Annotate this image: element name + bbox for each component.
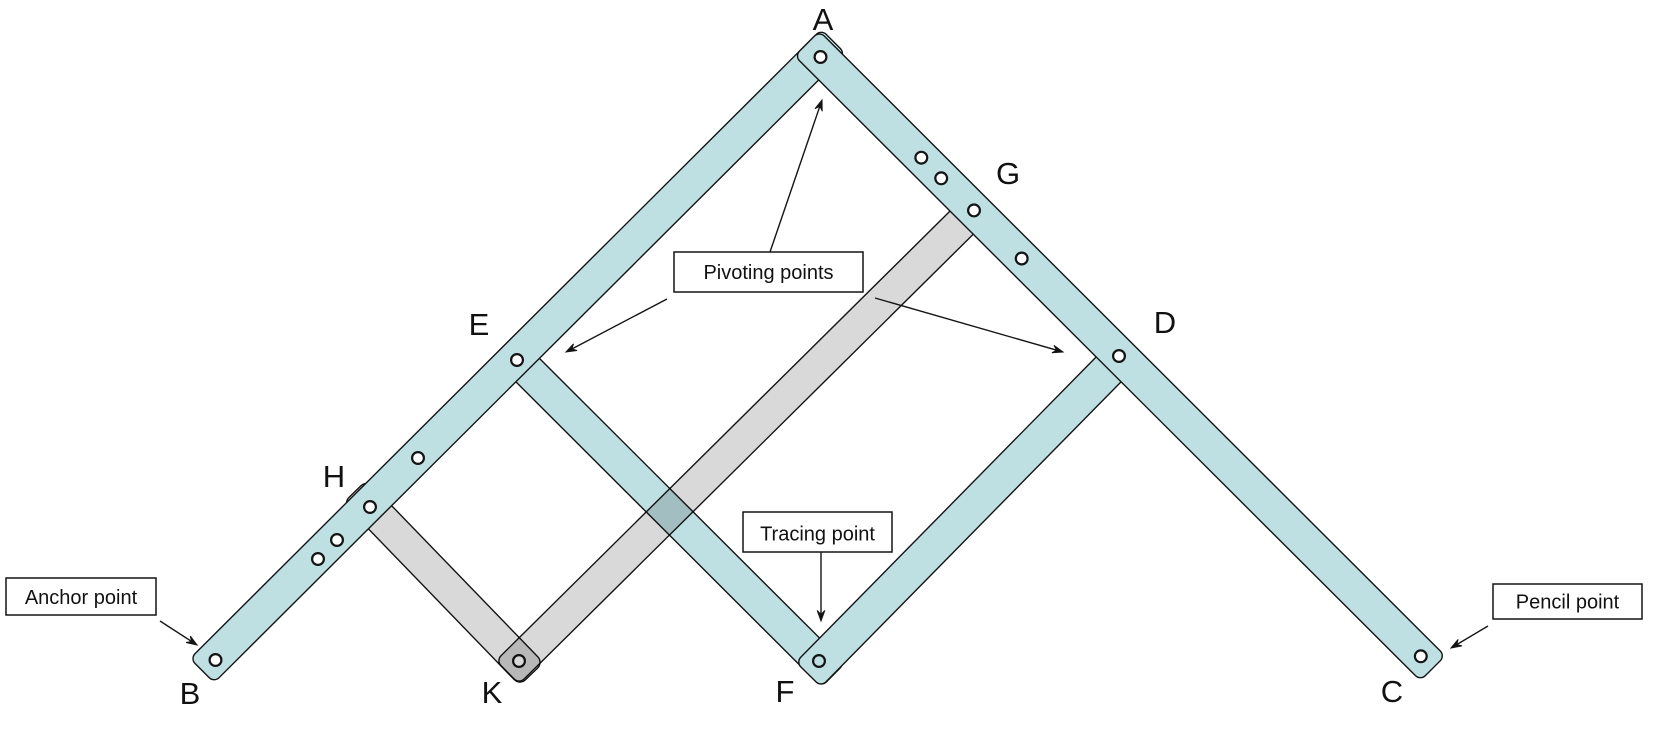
- svg-text:Pencil point: Pencil point: [1516, 592, 1620, 614]
- svg-text:D: D: [1154, 305, 1176, 340]
- svg-text:G: G: [996, 156, 1020, 191]
- svg-text:Pivoting points: Pivoting points: [703, 262, 833, 284]
- svg-text:K: K: [482, 675, 503, 710]
- svg-text:Tracing point: Tracing point: [760, 524, 875, 546]
- svg-text:A: A: [813, 2, 834, 37]
- svg-text:Anchor point: Anchor point: [25, 587, 138, 609]
- svg-text:E: E: [469, 307, 490, 342]
- svg-text:H: H: [323, 459, 345, 494]
- svg-text:C: C: [1381, 674, 1403, 709]
- svg-text:F: F: [776, 674, 795, 709]
- svg-text:B: B: [180, 676, 201, 711]
